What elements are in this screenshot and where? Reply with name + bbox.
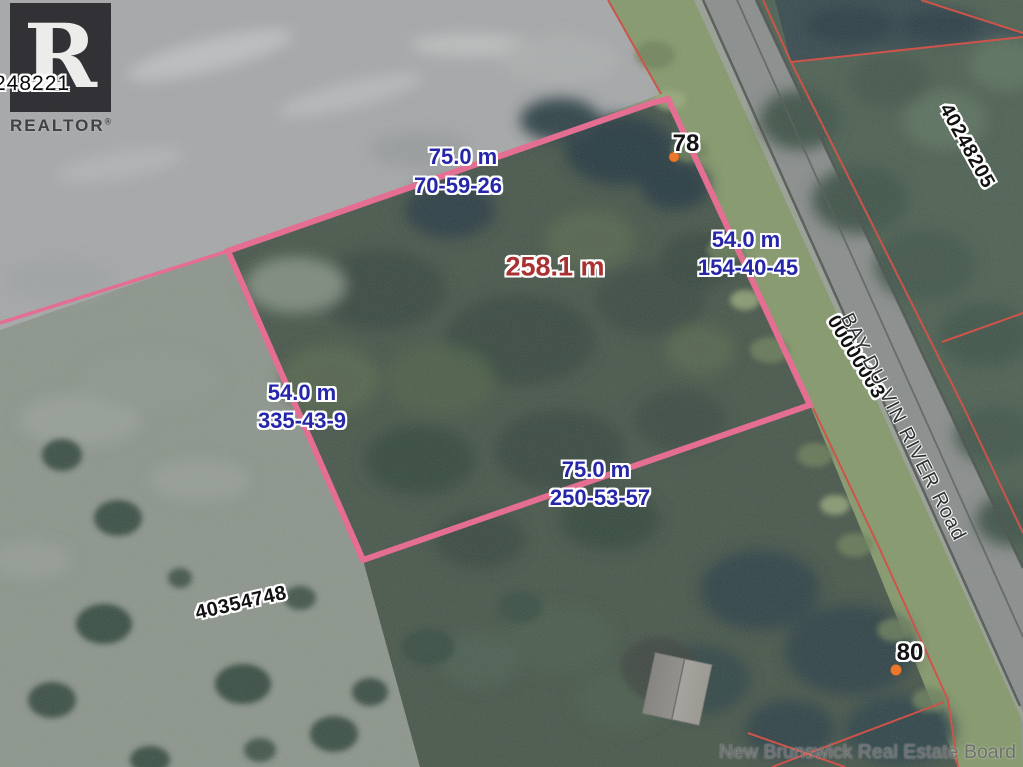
edge-right-length: 54.0 m xyxy=(712,229,781,251)
property-area-label: 258.1 m xyxy=(505,254,604,281)
realtor-brand-text: REALTOR xyxy=(10,116,105,135)
realtor-wordmark: REALTOR® xyxy=(10,116,111,136)
realtor-watermark: R REALTOR® xyxy=(10,3,111,136)
edge-top-length: 75.0 m xyxy=(429,146,498,168)
attribution-text: New Brunswick Real Estate Board xyxy=(719,741,1016,764)
edge-top-bearing: 70-59-26 xyxy=(414,175,502,197)
listing-id: 248221 xyxy=(0,72,70,96)
edge-bottom-length: 75.0 m xyxy=(562,459,631,481)
civic-number-78: 78 xyxy=(673,132,700,156)
map-canvas: 75.0 m 70-59-26 54.0 m 154-40-45 54.0 m … xyxy=(0,0,1023,767)
registered-mark: ® xyxy=(105,116,112,126)
edge-bottom-bearing: 250-53-57 xyxy=(550,487,650,509)
edge-left-bearing: 335-43-9 xyxy=(258,410,346,432)
edge-right-bearing: 154-40-45 xyxy=(698,257,798,279)
edge-left-length: 54.0 m xyxy=(268,382,337,404)
civic-number-80: 80 xyxy=(897,641,924,665)
